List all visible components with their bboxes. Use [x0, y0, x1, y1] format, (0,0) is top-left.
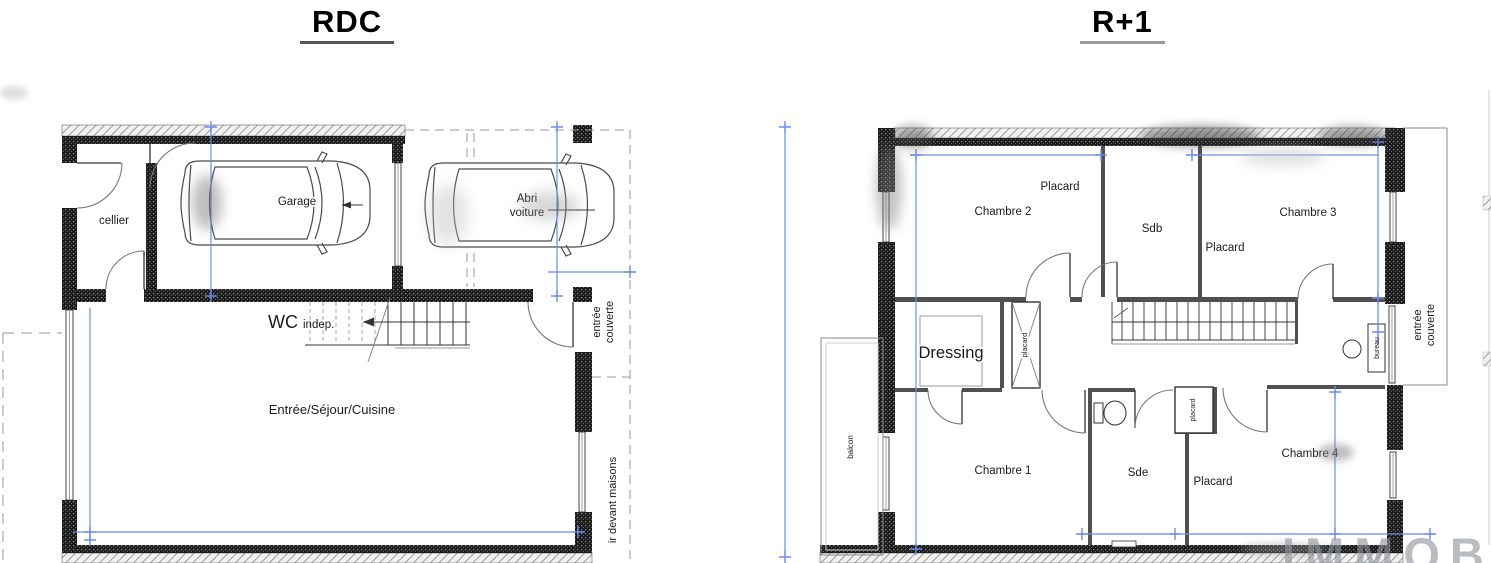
room-label-chambre4: Chambre 4 [1282, 448, 1339, 460]
car-garage [181, 152, 370, 254]
room-label-placard-ch2: Placard [1041, 181, 1080, 193]
plan-r1: Chambre 2 Placard Sdb Chambre 3 Placard … [779, 90, 1491, 563]
room-label-sdb: Sdb [1142, 223, 1162, 235]
label-bureau: bureau [1374, 337, 1381, 359]
floorplan-drawing: cellier Garage Abrivoiture WCindep. Entr… [0, 0, 1491, 563]
plan-title-rdc: RDC [300, 4, 394, 44]
closet-label-hall: placard [1020, 333, 1029, 358]
annotation-entree-couverte-rdc-2: couverte [604, 301, 616, 343]
watermark-text: IMMOB [1282, 527, 1491, 563]
r1-walls [820, 128, 1405, 563]
floorplan-page: RDC R+1 [0, 0, 1491, 563]
room-label-placard-ch3: Placard [1206, 242, 1245, 254]
plan-title-r1: R+1 [1080, 4, 1165, 44]
room-label-sde: Sde [1128, 467, 1148, 479]
room-label-chambre3: Chambre 3 [1280, 207, 1337, 219]
annotation-entree-couverte-r1-1: entrée [1412, 309, 1424, 340]
annotation-devant-maisons: ir devant maisons [607, 456, 619, 543]
room-label-garage: Garage [278, 196, 316, 208]
room-label-dressing: Dressing [918, 344, 983, 362]
r1-neighbour-edge [1483, 90, 1491, 545]
room-label-placard-ch4: Placard [1194, 476, 1233, 488]
plan-rdc: cellier Garage Abrivoiture WCindep. Entr… [3, 121, 636, 563]
stair-direction-arrow [363, 318, 374, 327]
annotation-entree-couverte-rdc-1: entrée [591, 306, 603, 337]
radiator-icon [1112, 541, 1136, 547]
rdc-terrace-outline [3, 333, 62, 563]
room-label-wc: WCindep. [268, 312, 334, 332]
room-label-chambre1: Chambre 1 [975, 465, 1032, 477]
annotation-entree-couverte-r1-2: couverte [1425, 304, 1437, 346]
r1-doors [928, 253, 1333, 433]
room-label-chambre2: Chambre 2 [975, 206, 1032, 218]
toilet-icon [1094, 401, 1126, 425]
car-carport [425, 154, 614, 256]
closet-label-sde: placard [1190, 398, 1197, 421]
label-balcon: balcon [846, 435, 855, 459]
r1-stairs [1112, 302, 1295, 344]
room-label-sejour: Entrée/Séjour/Cuisine [269, 402, 395, 417]
room-label-cellier: cellier [99, 215, 129, 227]
